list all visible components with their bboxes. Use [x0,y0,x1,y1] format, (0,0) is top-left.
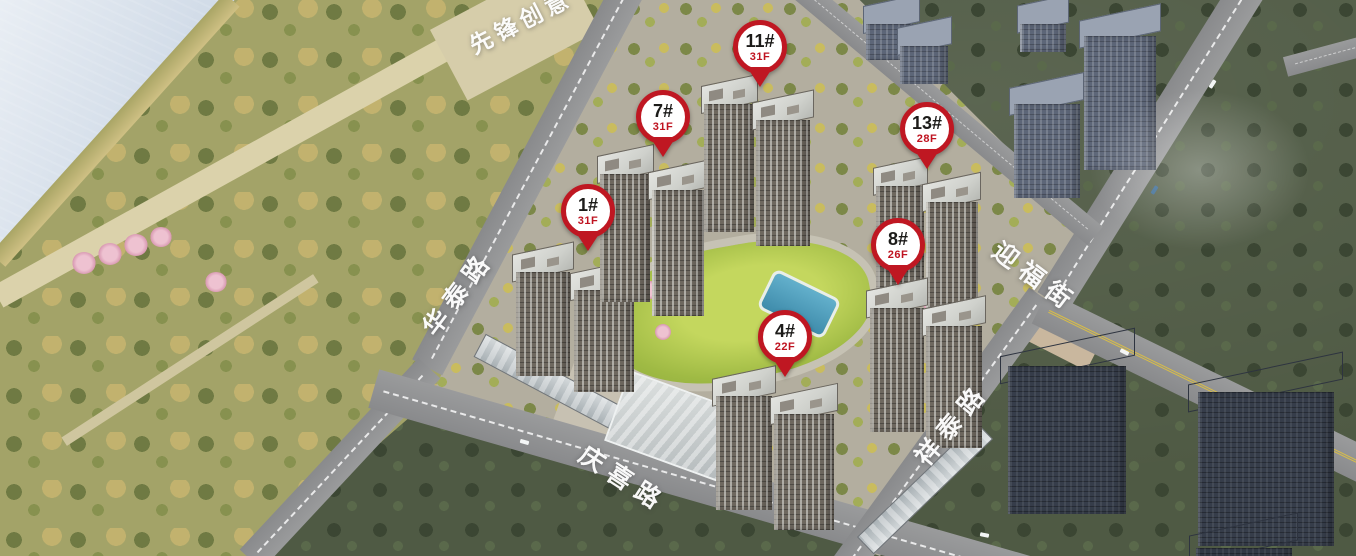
tower-facade [900,46,948,84]
marker-bubble: 7# 31F [636,90,690,144]
marker-bubble: 8# 26F [871,218,925,272]
marker-floor-count: 28F [917,134,937,145]
marker-building-1[interactable]: 1# 31F [558,184,618,251]
context-tower [1084,12,1156,170]
marker-bubble: 1# 31F [561,184,615,238]
marker-building-13[interactable]: 13# 28F [897,102,957,169]
marker-building-number: 1# [578,196,598,214]
tower-facade [756,120,810,246]
blossom-trees [98,243,122,265]
marker-floor-count: 31F [750,52,770,63]
tower-facade [1020,24,1066,52]
marker-tail [747,67,773,87]
marker-floor-count: 26F [888,250,908,261]
blossom-trees [150,227,172,247]
marker-bubble: 11# 31F [733,20,787,74]
blossom-trees [655,324,671,340]
tower-facade [1008,366,1126,514]
blossom-trees [205,272,227,292]
marker-building-8[interactable]: 8# 26F [868,218,928,285]
tower-facade [704,104,754,232]
blossom-trees [72,252,96,274]
tower-facade [870,308,924,432]
blossom-trees [124,234,148,256]
tower [774,390,834,530]
marker-building-7[interactable]: 7# 31F [633,90,693,157]
marker-bubble: 4# 22F [758,310,812,364]
tower [516,248,570,376]
context-tower [1008,342,1126,514]
marker-tail [650,137,676,157]
tower [716,372,772,510]
tower-facade [1196,548,1292,556]
tower-facade [652,190,704,316]
tower-facade [574,290,634,392]
tower-facade [716,396,772,510]
marker-tail [914,149,940,169]
tower [926,178,978,310]
marker-building-number: 4# [775,322,795,340]
tower-facade [774,414,834,530]
marker-building-11[interactable]: 11# 31F [730,20,790,87]
context-tower [900,22,948,84]
context-tower [1196,524,1292,556]
tower [652,166,704,316]
marker-building-number: 11# [745,32,774,50]
marker-building-number: 8# [888,230,908,248]
tower [870,284,924,432]
tower [756,96,810,246]
tower-facade [926,202,978,310]
tower [704,80,754,232]
context-tower [1014,80,1080,198]
marker-bubble: 13# 28F [900,102,954,156]
context-tower [1020,0,1066,52]
marker-floor-count: 31F [653,122,673,133]
marker-building-4[interactable]: 4# 22F [755,310,815,377]
site-plan-canvas: 先锋创意 华泰路 庆喜路 祥泰路 迎福街 1# 31F 4# 22F 7# 31… [0,0,1356,556]
marker-floor-count: 22F [775,342,795,353]
marker-floor-count: 31F [578,216,598,227]
marker-tail [772,357,798,377]
tower-facade [1014,104,1080,198]
marker-building-number: 13# [912,114,942,132]
marker-tail [575,231,601,251]
marker-tail [885,265,911,285]
tower-facade [1084,36,1156,170]
tower-facade [516,272,570,376]
marker-building-number: 7# [653,102,673,120]
